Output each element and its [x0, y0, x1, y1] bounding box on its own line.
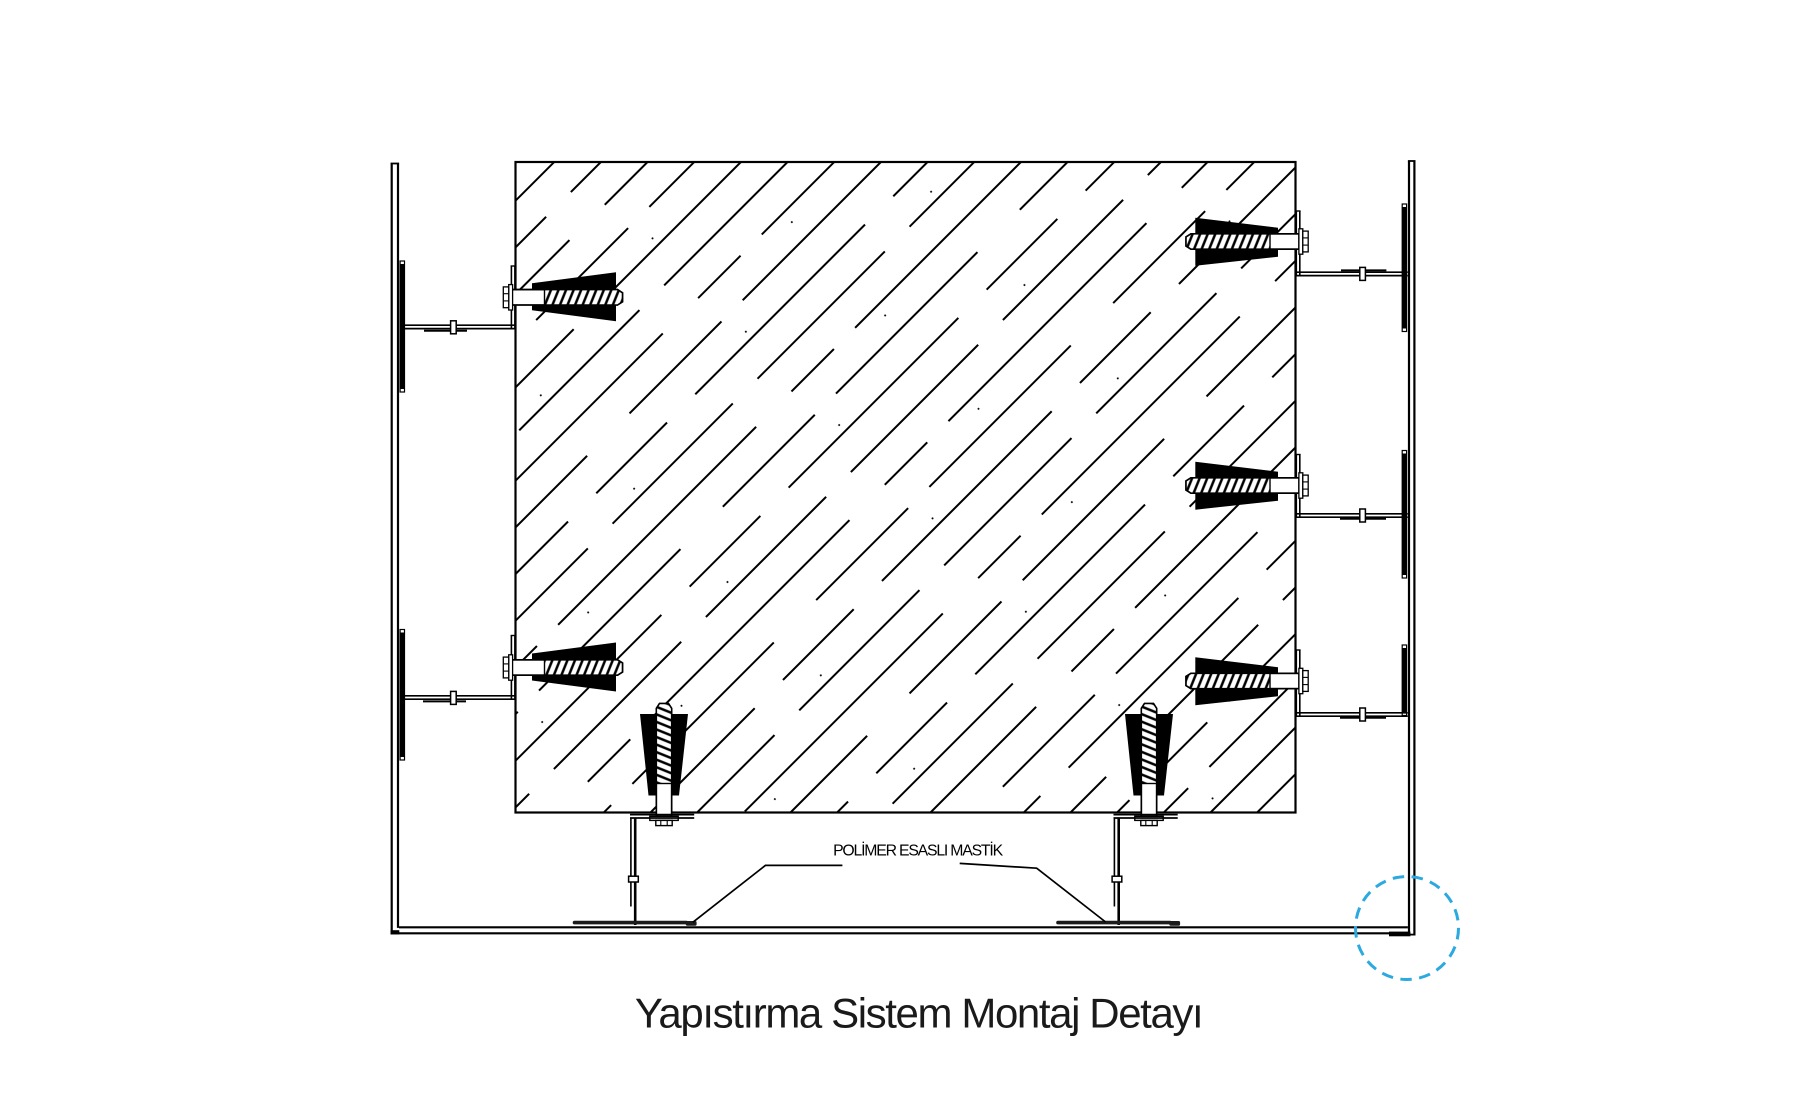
svg-text:POLİMER ESASLI MASTİK: POLİMER ESASLI MASTİK: [833, 840, 1003, 859]
svg-text:Yapıstırma Sistem Montaj Detay: Yapıstırma Sistem Montaj Detayı: [635, 990, 1202, 1037]
